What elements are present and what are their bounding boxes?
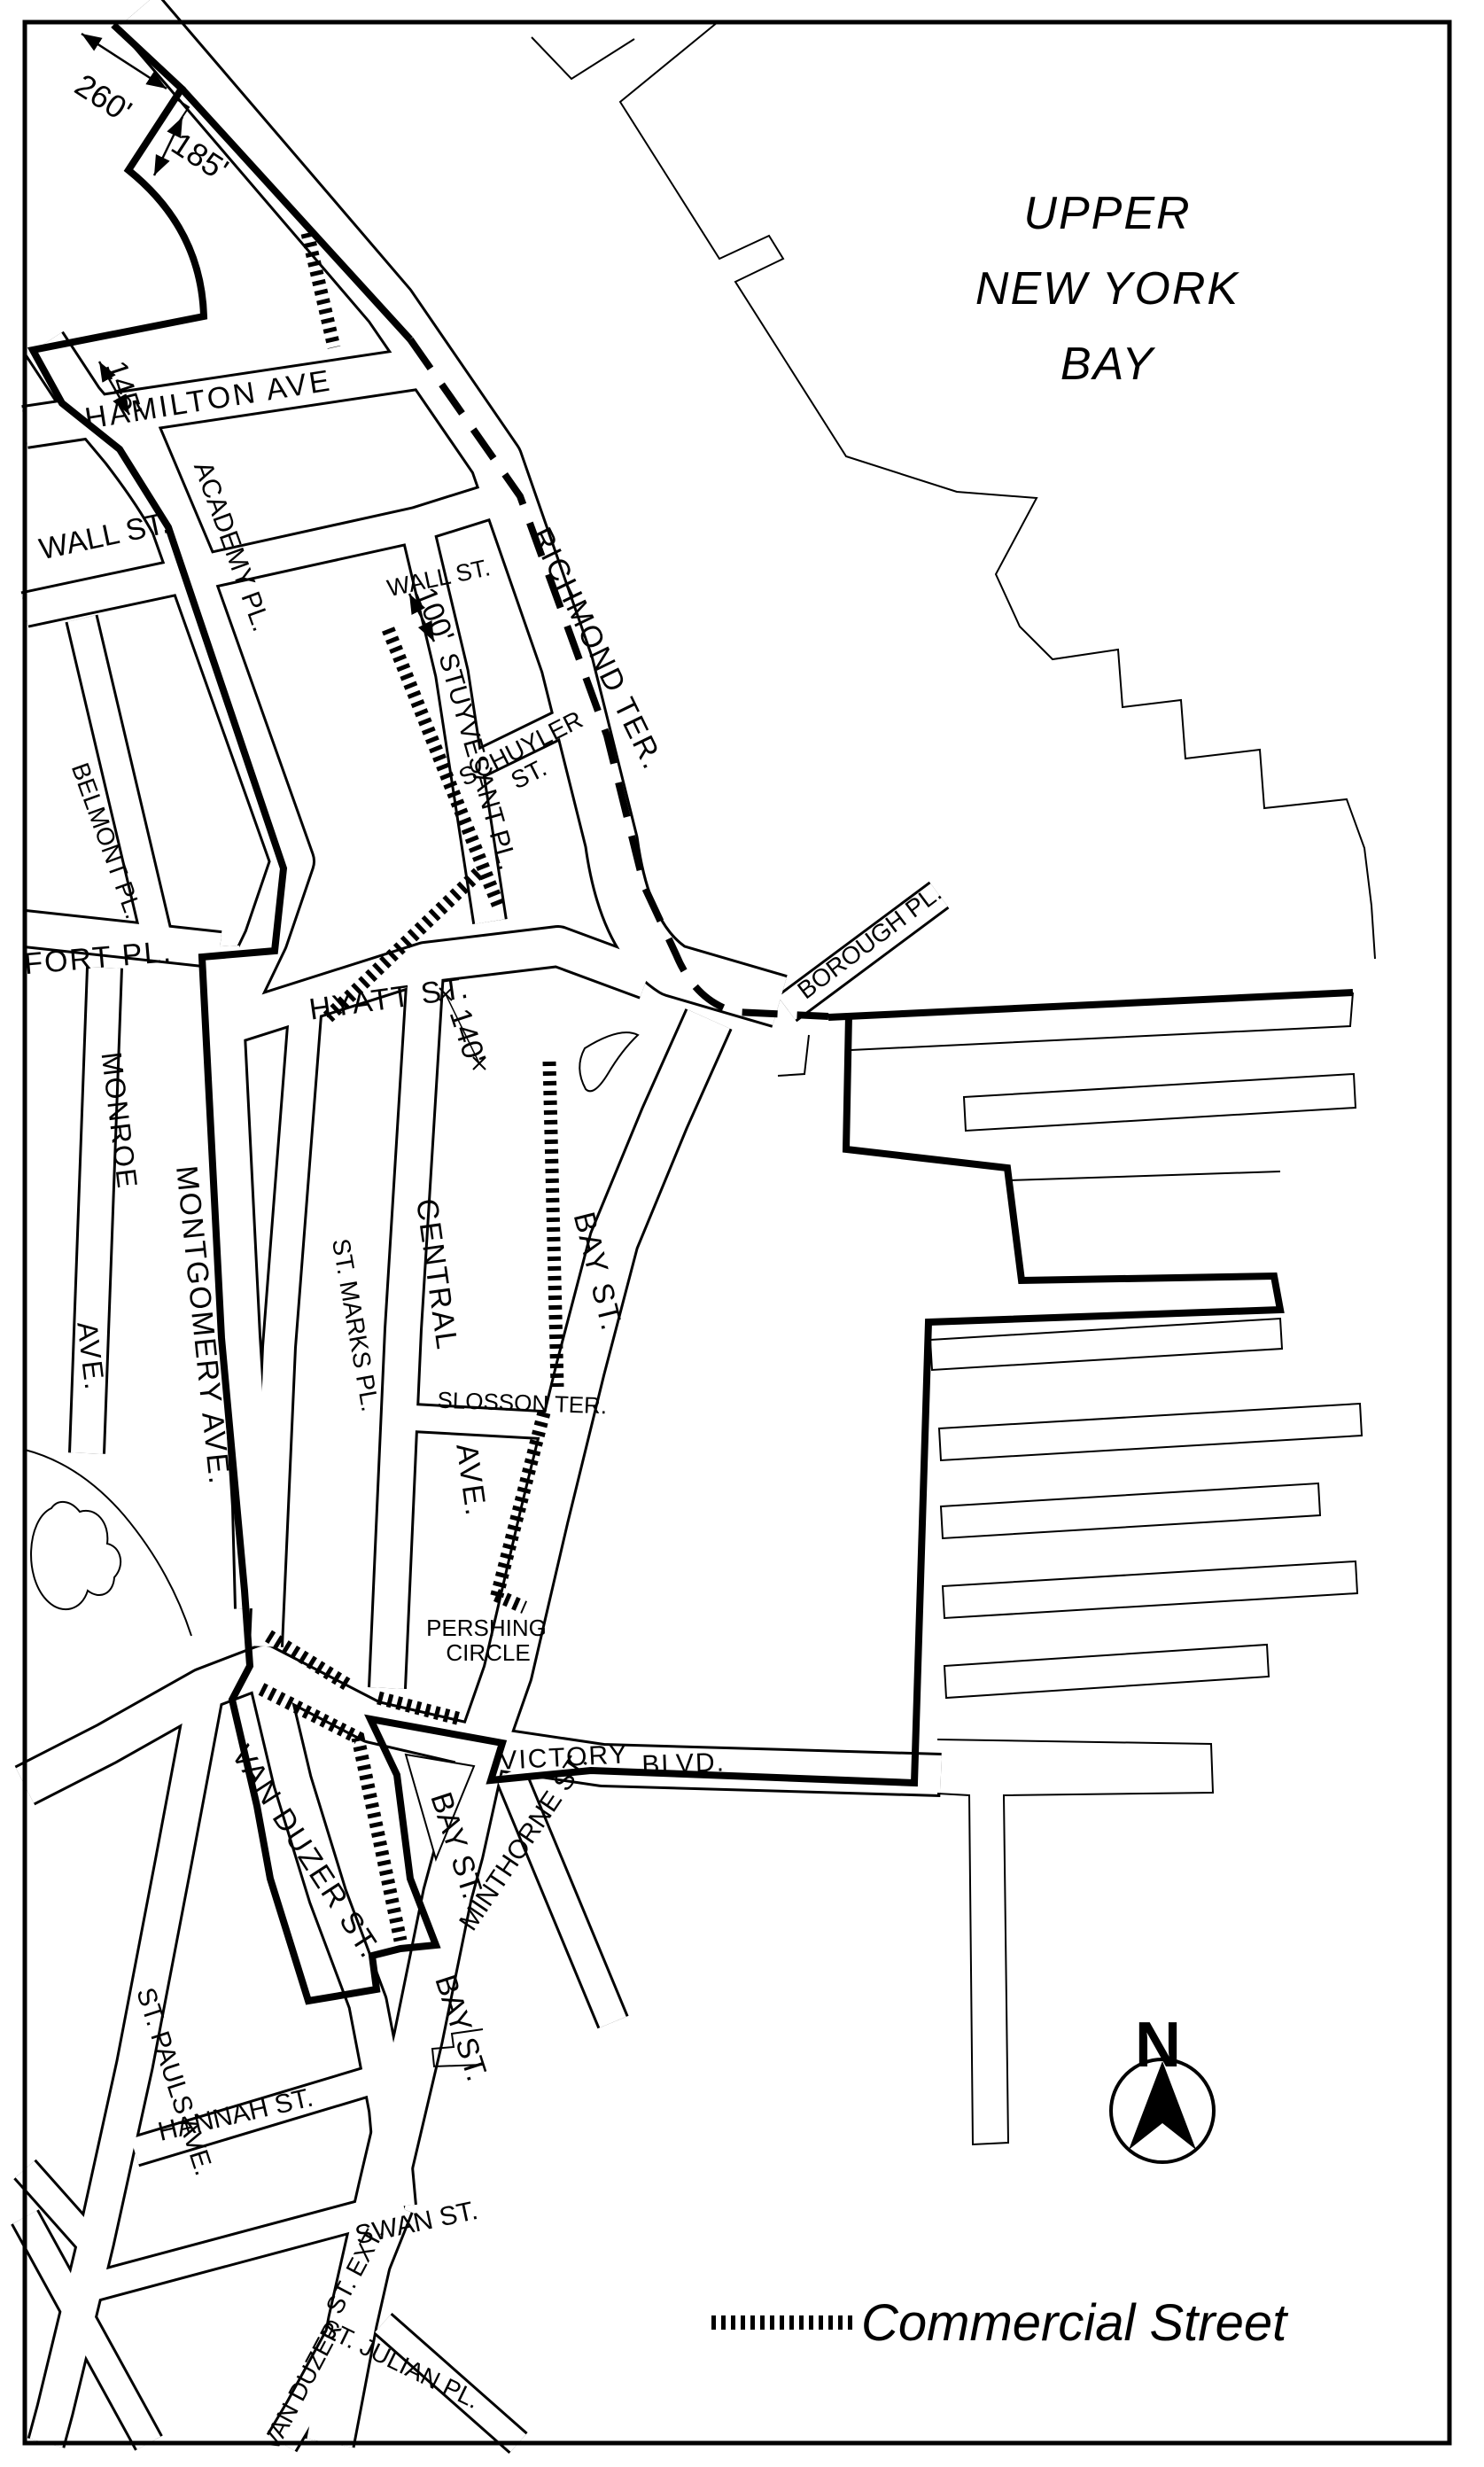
street-label-circle: CIRCLE bbox=[446, 1639, 530, 1666]
compass-north-label: N bbox=[1135, 2010, 1181, 2081]
water-label-line3: BAY bbox=[1061, 339, 1156, 390]
street-label-pershing: PERSHING bbox=[426, 1615, 547, 1641]
map-svg: UPPER NEW YORK BAY HAMILTON AVE RICHMOND… bbox=[0, 0, 1484, 2467]
zoning-map-document: UPPER NEW YORK BAY HAMILTON AVE RICHMOND… bbox=[0, 0, 1484, 2467]
street-label-blvd: BLVD. bbox=[641, 1747, 726, 1779]
water-label-line2: NEW YORK bbox=[975, 263, 1240, 315]
water-label-line1: UPPER bbox=[1023, 188, 1191, 239]
legend-commercial-street-label: Commercial Street bbox=[861, 2294, 1289, 2352]
